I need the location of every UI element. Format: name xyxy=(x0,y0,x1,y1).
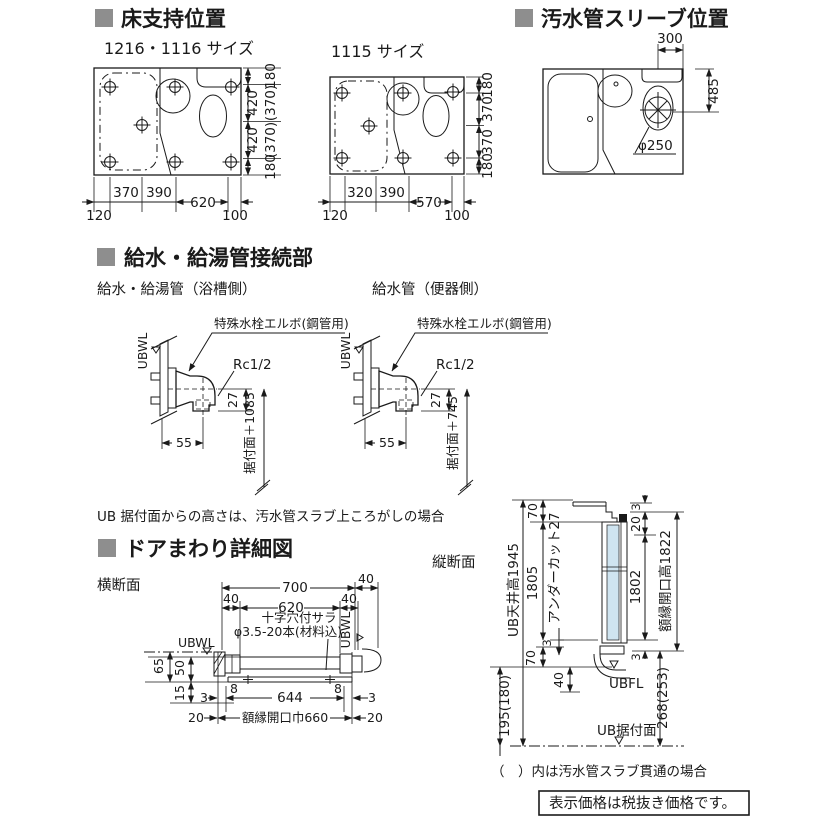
dim-390: 390 xyxy=(146,185,172,201)
section-title-floor: 床支持位置 xyxy=(121,7,226,31)
paren-note: （ ）内は汚水管スラブ貫通の場合 xyxy=(491,763,707,780)
dim-300: 300 xyxy=(657,31,683,47)
dim-3: 3 xyxy=(629,503,643,510)
dim-644: 644 xyxy=(277,690,303,706)
thread-label: Rc1/2 xyxy=(436,357,475,373)
section-bullet-door xyxy=(98,539,116,557)
height-label: 据付面＋1085 xyxy=(242,392,257,474)
dim-20: 20 xyxy=(367,710,383,725)
undercut-label: アンダーカット27 xyxy=(547,512,563,623)
dim-620: 620 xyxy=(190,195,216,211)
dim-40: 40 xyxy=(358,571,374,586)
dim-55: 55 xyxy=(379,435,395,450)
dim-65: 65 xyxy=(151,658,166,674)
catalog-diagram-page: 床支持位置 汚水管スリーブ位置 給水・給湯管接続部 ドアまわり詳細図 1216・… xyxy=(0,0,836,836)
opening-height-label: 額縁開口高1822 xyxy=(657,530,674,632)
frame-casing xyxy=(362,649,381,672)
ubwl-label: UBWL xyxy=(135,333,150,370)
elbow-body xyxy=(379,371,418,411)
supply-bath-label: 給水・給湯管（浴槽側） xyxy=(97,281,257,298)
thread-label: Rc1/2 xyxy=(233,357,272,373)
supply-toilet-label: 給水管（便器側） xyxy=(372,281,488,298)
dim-370: 370 xyxy=(480,96,496,122)
screw-label-2: φ3.5-20本(材料込) xyxy=(234,624,342,639)
dim-100: 100 xyxy=(444,208,470,224)
dim-3: 3 xyxy=(629,653,643,660)
dim-40: 40 xyxy=(551,672,566,688)
section-title-supply: 給水・給湯管接続部 xyxy=(124,246,313,270)
dim-320: 320 xyxy=(347,185,373,201)
dim-27: 27 xyxy=(225,392,240,408)
dim-120: 120 xyxy=(322,208,348,224)
elbow-label: 特殊水栓エルボ(鋼管用) xyxy=(214,316,349,331)
dim-120: 120 xyxy=(86,208,112,224)
dim-420: 420 xyxy=(245,90,261,116)
dim-268: 268(253) xyxy=(655,667,671,729)
screw-leader xyxy=(326,639,328,670)
ubfl-label: UBFL xyxy=(609,676,644,692)
cross-section-label: 横断面 xyxy=(97,577,141,594)
dim-180: 180 xyxy=(480,72,496,98)
dim-195: 195(180) xyxy=(497,675,513,737)
dim-3: 3 xyxy=(540,639,554,646)
dim-70: 70 xyxy=(523,650,538,666)
dim-1802: 1802 xyxy=(628,570,644,604)
dim-50: 50 xyxy=(172,660,187,676)
plan-b-size-label: 1115 サイズ xyxy=(331,42,424,61)
level-mark xyxy=(355,347,363,353)
ubwl-label: UBWL xyxy=(338,333,353,370)
diagram-canvas: 床支持位置 汚水管スリーブ位置 給水・給湯管接続部 ドアまわり詳細図 1216・… xyxy=(0,0,836,836)
dim-420: 420 xyxy=(245,127,261,153)
elbow-label: 特殊水栓エルボ(鋼管用) xyxy=(417,316,552,331)
dim-27: 27 xyxy=(428,392,443,408)
opening-width-label: 額縁開口巾660 xyxy=(242,710,328,725)
dim-570: 570 xyxy=(416,195,442,211)
dim-370-alt: (370) xyxy=(263,122,279,158)
dim-40: 40 xyxy=(341,591,357,606)
screw-label-1: 十字穴付サラ xyxy=(261,610,336,625)
dim-15: 15 xyxy=(172,685,187,701)
elbow-flange xyxy=(168,368,176,408)
ceiling-height-label: UB天井高1945 xyxy=(505,543,522,637)
dim-100: 100 xyxy=(222,208,248,224)
dim-700: 700 xyxy=(282,580,308,596)
dim-485: 485 xyxy=(706,78,722,104)
plan-a-size-label: 1216・1116 サイズ xyxy=(104,39,254,58)
dim-20: 20 xyxy=(628,516,643,532)
level-mark xyxy=(152,347,160,353)
base-surface-label: UB据付面 xyxy=(597,723,657,739)
dim-70: 70 xyxy=(525,503,540,519)
dim-8: 8 xyxy=(334,681,342,696)
dim-20: 20 xyxy=(188,710,204,725)
dim-1805: 1805 xyxy=(525,566,541,600)
dim-390: 390 xyxy=(379,185,405,201)
dim-370: 370 xyxy=(480,129,496,155)
dim-40: 40 xyxy=(223,591,239,606)
price-note: 表示価格は税抜き価格です。 xyxy=(549,795,736,812)
door-panel xyxy=(240,657,340,669)
dim-3: 3 xyxy=(200,690,208,705)
dim-180: 180 xyxy=(263,154,279,180)
door-panel xyxy=(607,525,619,640)
section-bullet-floor xyxy=(95,9,113,27)
height-label: 据付面＋745 xyxy=(445,396,460,470)
elbow-body xyxy=(176,371,215,411)
dim-3: 3 xyxy=(368,690,376,705)
dim-370: 370 xyxy=(113,185,139,201)
section-bullet-supply xyxy=(97,248,115,266)
wall-section xyxy=(160,340,168,416)
section-title-sleeve: 汚水管スリーブ位置 xyxy=(541,7,729,31)
dim-8: 8 xyxy=(230,681,238,696)
wall-section xyxy=(363,340,371,416)
floor-pan-edge xyxy=(594,654,630,678)
elbow-flange xyxy=(371,368,379,408)
dim-370-alt: (370) xyxy=(263,85,279,121)
ubwl-label: UBWL xyxy=(178,635,215,650)
sleeve-diameter-label: φ250 xyxy=(638,138,673,154)
vert-section-label: 縦断面 xyxy=(432,554,476,571)
sleeve-plan-linework xyxy=(543,44,719,174)
section-title-door: ドアまわり詳細図 xyxy=(125,537,293,561)
section-bullet-sleeve xyxy=(515,9,533,27)
dim-180: 180 xyxy=(480,153,496,179)
dim-55: 55 xyxy=(176,435,192,450)
supply-note: UB 据付面からの高さは、汚水管スラブ上ころがしの場合 xyxy=(97,508,445,525)
